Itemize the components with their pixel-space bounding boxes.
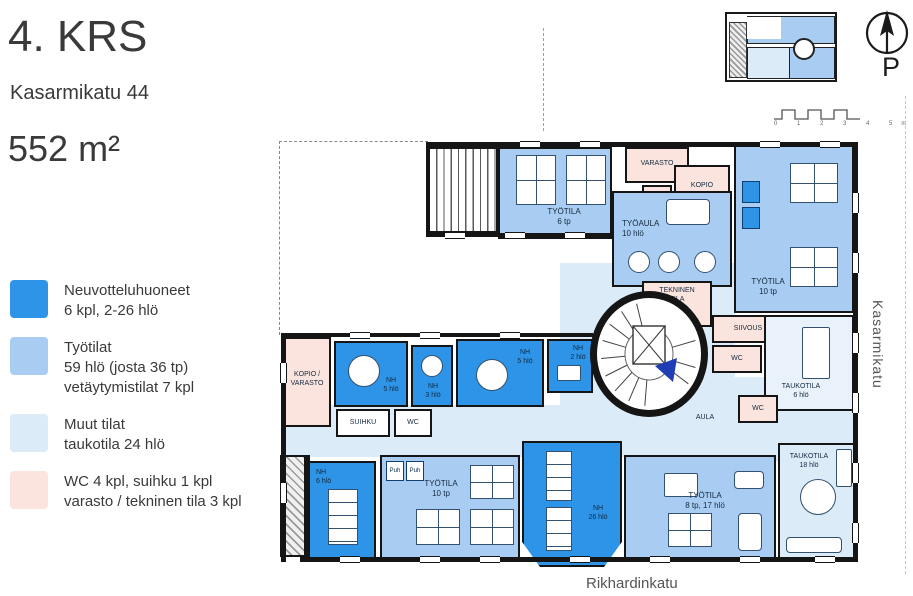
demise-boundary bbox=[279, 141, 280, 335]
compass-icon bbox=[862, 8, 912, 58]
room-nh2: NH 2 hlö bbox=[547, 339, 593, 393]
scale-bar-ticks: 0 1 2 3 4 5m bbox=[774, 121, 913, 127]
room-nh6: NH 6 hlö bbox=[308, 461, 376, 559]
thumbnail-core bbox=[793, 38, 815, 60]
demise-boundary bbox=[279, 141, 428, 142]
wall bbox=[306, 455, 310, 559]
room-label: NH 5 hlö bbox=[510, 349, 540, 367]
room-label: NH 2 hlö bbox=[563, 345, 593, 363]
room-label: WC bbox=[740, 405, 776, 414]
phone-booth: Puh bbox=[406, 461, 424, 481]
floor-plan: TYÖTILA 6 tp VARASTO WC KOPIO TYÖAULA 10… bbox=[270, 133, 870, 585]
legend-item-workspaces: Työtilat 59 hlö (josta 36 tp) vetäytymis… bbox=[10, 337, 265, 398]
room-wc-corridor: WC bbox=[394, 409, 432, 437]
legend-item-service-spaces: WC 4 kpl, suihku 1 kpl varasto / teknine… bbox=[10, 471, 265, 512]
room-wc-mid: WC bbox=[712, 345, 762, 373]
room-label: NH 26 hlö bbox=[580, 505, 616, 523]
spiral-stair-icon bbox=[597, 298, 701, 410]
room-label: SUIHKU bbox=[338, 419, 388, 428]
floor-plan-page: { "header": { "floor": "4. KRS", "addres… bbox=[0, 0, 913, 596]
workspace-swatch bbox=[10, 337, 48, 375]
room-label: WC bbox=[714, 355, 760, 364]
room-tyotila-8tp: TYÖTILA 8 tp, 17 hlö bbox=[624, 455, 776, 559]
room-suihku: SUIHKU bbox=[336, 409, 390, 437]
central-stair-core bbox=[590, 291, 708, 417]
street-name-bottom: Rikhardinkatu bbox=[586, 575, 678, 592]
thumbnail-room bbox=[747, 17, 781, 39]
site-plan-thumbnail bbox=[725, 12, 837, 82]
room-label: NH 3 hlö bbox=[417, 383, 449, 401]
room-nh26: NH 26 hlö bbox=[522, 441, 622, 567]
room-tyotila-6tp: TYÖTILA 6 tp bbox=[498, 147, 612, 239]
aula-label: AULA bbox=[685, 414, 725, 423]
legend-item-label: Muut tilat taukotila 24 hlö bbox=[64, 414, 165, 455]
stairwell-top bbox=[428, 147, 498, 233]
wall bbox=[426, 142, 430, 237]
boundary-line bbox=[543, 28, 544, 131]
legend-item-meeting-rooms: Neuvotteluhuoneet 6 kpl, 2-26 hlö bbox=[10, 280, 265, 321]
legend-item-other-spaces: Muut tilat taukotila 24 hlö bbox=[10, 414, 265, 455]
legend-item-label: Työtilat 59 hlö (josta 36 tp) vetäytymis… bbox=[64, 337, 194, 398]
meeting-room-swatch bbox=[10, 280, 48, 318]
room-label: NH 6 hlö bbox=[316, 469, 346, 487]
room-label: TYÖTILA 6 tp bbox=[534, 207, 594, 227]
room-label: TYÖTILA 10 tp bbox=[416, 479, 466, 499]
legend-item-label: Neuvotteluhuoneet 6 kpl, 2-26 hlö bbox=[64, 280, 190, 321]
legend-item-label: WC 4 kpl, suihku 1 kpl varasto / teknine… bbox=[64, 471, 242, 512]
room-taukotila-18: TAUKOTILA 18 hlö bbox=[778, 443, 856, 561]
address: Kasarmikatu 44 bbox=[10, 82, 149, 105]
room-label: TYÖAULA 10 hlö bbox=[622, 219, 676, 239]
street-name-right: Kasarmikatu bbox=[870, 300, 886, 389]
room-label: WC bbox=[396, 419, 430, 428]
room-label: KOPIO / VARASTO bbox=[285, 371, 329, 389]
room-nh5-a: NH 5 hlö bbox=[334, 341, 408, 407]
room-kopio-varasto: KOPIO / VARASTO bbox=[283, 337, 331, 427]
room-label: TAUKOTILA 18 hlö bbox=[782, 453, 836, 471]
legend: Neuvotteluhuoneet 6 kpl, 2-26 hlö Työtil… bbox=[10, 280, 265, 511]
room-tyotila-10tp-right: TYÖTILA 10 tp bbox=[734, 143, 854, 313]
room-label: TYÖTILA 8 tp, 17 hlö bbox=[670, 491, 740, 511]
thumbnail-hatch-area bbox=[729, 22, 747, 78]
room-wc-lower: WC bbox=[738, 395, 778, 423]
phone-booth: Puh bbox=[386, 461, 404, 481]
other-space-swatch bbox=[10, 414, 48, 452]
page-title: 4. KRS bbox=[8, 12, 147, 62]
service-space-swatch bbox=[10, 471, 48, 509]
room-label: KOPIO bbox=[676, 182, 728, 191]
boundary-line bbox=[905, 96, 906, 574]
room-tyoaula: TYÖAULA 10 hlö bbox=[612, 191, 732, 287]
room-label: NH 5 hlö bbox=[376, 377, 406, 395]
total-area: 552 m² bbox=[8, 128, 120, 170]
wall bbox=[426, 142, 858, 147]
room-nh3: NH 3 hlö bbox=[411, 345, 453, 407]
room-tyotila-10tp-bottom: Puh Puh TYÖTILA 10 tp bbox=[380, 455, 520, 559]
room-label: TYÖTILA 10 tp bbox=[740, 277, 796, 297]
room-nh5-b: NH 5 hlö bbox=[456, 339, 544, 407]
compass-north-label: P bbox=[882, 52, 900, 83]
